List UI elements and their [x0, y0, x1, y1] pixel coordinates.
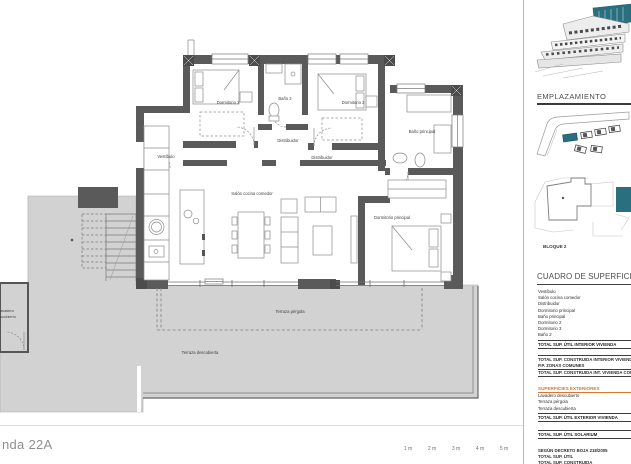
- label-dormitorio2: Dormitorio 2: [342, 100, 365, 105]
- label-bano-principal: Baño principal: [409, 129, 436, 134]
- highlighted-unit: [616, 187, 631, 212]
- label-distribuidor-2: Distribuidor: [311, 155, 333, 160]
- unit-locator-sketch: [533, 172, 631, 238]
- construida-section: TOTAL SUP. CONSTRUIDA INTERIOR VIVIENDA …: [538, 355, 631, 378]
- scale-label: 1 m: [396, 446, 420, 452]
- scale-label: 4 m: [468, 446, 492, 452]
- scale-bar: 1 m 2 m 3 m 4 m 5 m: [396, 446, 518, 452]
- label-dormitorio-principal: Dormitorio principal: [374, 215, 410, 220]
- scale-label: 5 m: [492, 446, 516, 452]
- highlighted-site-block: [563, 133, 578, 142]
- shelf: [351, 216, 357, 263]
- neighbor-wall: [78, 187, 118, 208]
- label-lavadero-2: descubierto: [0, 315, 16, 319]
- emplazamiento-heading: EMPLAZAMIENTO: [537, 92, 631, 105]
- terrace-gap: [137, 366, 141, 412]
- scale-label: 2 m: [420, 446, 444, 452]
- superficies-table: Vestíbulo Salón cocina comedor Distribui…: [538, 289, 631, 464]
- total-construida-interior-row: TOTAL SUP. CONSTRUIDA INTERIOR VIVIENDA: [538, 357, 631, 363]
- total-util-interior-row: TOTAL SUP. ÚTIL INTERIOR VIVIENDA: [538, 340, 631, 349]
- label-terraza-pergola: Terraza pérgola: [275, 309, 305, 314]
- sofa: [281, 217, 298, 263]
- scale-label: 3 m: [444, 446, 468, 452]
- label-bano2: Baño 2: [278, 96, 292, 101]
- label-dormitorio3: Dormitorio 3: [217, 100, 240, 105]
- bloque-label: BLOQUE 2: [543, 244, 566, 249]
- kitchen-island: [180, 190, 204, 264]
- titleblock-divider: [0, 425, 523, 426]
- cuadro-heading: CUADRO DE SUPERFICIES: [537, 272, 631, 285]
- total-construida-con-pp-row: TOTAL SUP. CONSTRUIDA INT. VIVIENDA CON …: [538, 370, 631, 377]
- site-plan-sketch: [533, 110, 631, 168]
- side-table: [281, 199, 297, 213]
- table-row: Baño 2: [538, 332, 631, 338]
- total-util-solarium-row: TOTAL SUP. ÚTIL SOLARIUM: [538, 430, 631, 439]
- plan-sheet: Vestíbulo Dormitorio 3 Baño 2 Dormitorio…: [0, 0, 631, 464]
- dining-table: [238, 212, 264, 258]
- armchair: [313, 226, 332, 255]
- label-distribuidor: Distribuidor: [277, 138, 299, 143]
- total-util-exterior-row: TOTAL SUP. ÚTIL EXTERIOR VIVIENDA: [538, 413, 631, 422]
- table-row: Terraza descubierta: [538, 406, 631, 412]
- label-lavadero-1: Lavadero: [0, 309, 14, 313]
- label-terraza-descubierta: Terraza descubierta: [182, 350, 219, 355]
- label-vestibulo: Vestíbulo: [157, 154, 175, 159]
- bloque-outline: [547, 178, 591, 220]
- sheet-divider: [523, 0, 524, 464]
- pp-zonas-comunes-row: P.P. ZONAS COMUNES: [538, 363, 631, 370]
- info-panel: EMPLAZAMIENTO: [531, 0, 631, 464]
- total-construida-row: TOTAL SUP. CONSTRUIDA: [538, 460, 631, 464]
- label-salon: Salón cocina comedor: [231, 191, 273, 196]
- floorplan-drawing: Vestíbulo Dormitorio 3 Baño 2 Dormitorio…: [0, 0, 523, 464]
- building-sketch: [533, 2, 631, 88]
- superficies-exteriores-heading: SUPERFICIES EXTERIORES: [538, 385, 631, 393]
- sheet-title: nda 22A: [2, 437, 53, 452]
